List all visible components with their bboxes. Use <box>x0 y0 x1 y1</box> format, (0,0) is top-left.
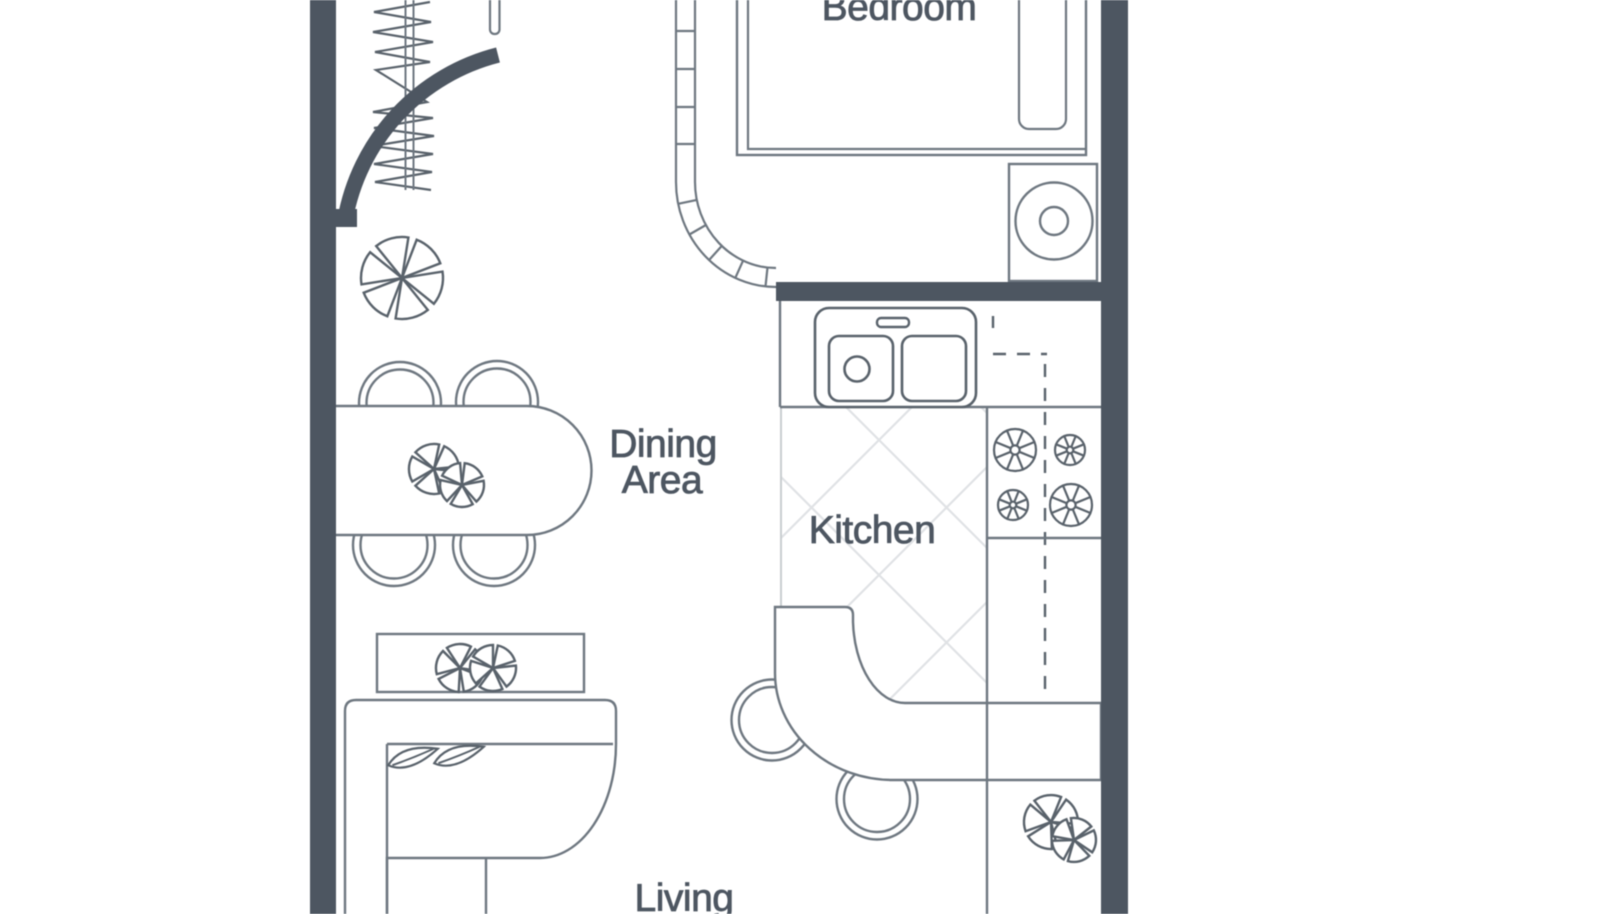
svg-text:Kitchen: Kitchen <box>809 509 936 552</box>
svg-text:Bedroom: Bedroom <box>822 0 977 29</box>
svg-text:Living: Living <box>635 877 734 914</box>
svg-text:Area: Area <box>622 459 703 502</box>
